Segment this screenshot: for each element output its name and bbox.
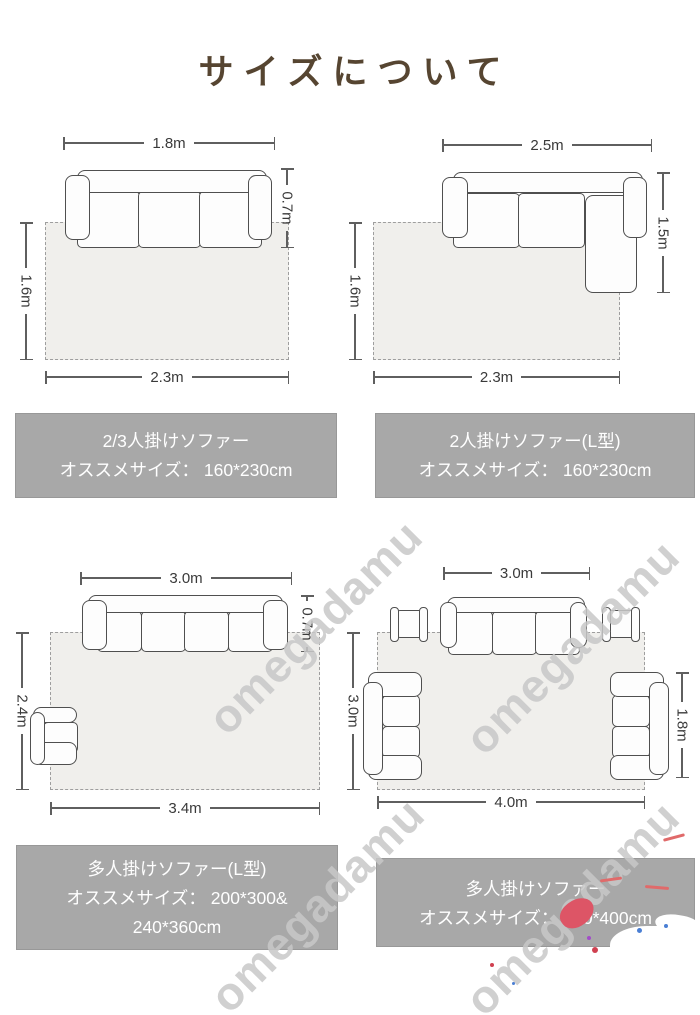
red-speck: [490, 963, 494, 967]
dimension-line: [25, 224, 27, 269]
dimension-left: 2.4m: [12, 632, 32, 790]
seat-cushion: [518, 193, 585, 248]
seat-cushion: [612, 695, 650, 727]
dimension-tick: [589, 567, 591, 580]
stool-left-side: [419, 607, 428, 642]
dimension-tick: [16, 789, 29, 791]
page-title: サイズについて: [0, 44, 700, 95]
loveseat-left-seats: [382, 695, 420, 758]
dimension-line: [52, 807, 161, 809]
dimension-label: 0.7m: [279, 191, 296, 224]
dimension-line: [352, 734, 354, 789]
dimension-line: [572, 144, 651, 146]
seat-cushion: [184, 611, 229, 652]
stool-left-side: [390, 607, 399, 642]
sofa-backrest: [77, 170, 267, 193]
dimension-line: [681, 674, 683, 703]
seat-cushion: [492, 611, 537, 655]
sofa-backrest: [447, 597, 585, 613]
seat-cushion: [382, 726, 420, 758]
blue-speck: [664, 924, 668, 928]
diagram-l-shape-2-seater: 2.5m 1.6m 1.5m 2.3m: [352, 130, 700, 400]
caption-recommended-size: オススメサイズ： 160*230cm: [376, 456, 694, 485]
dimension-label: 3.0m: [492, 565, 541, 582]
dimension-line: [286, 231, 288, 247]
dimension-label: 2.3m: [142, 369, 191, 386]
dimension-label: 3.0m: [345, 694, 362, 727]
dimension-tick: [288, 371, 290, 384]
dimension-tick: [657, 292, 670, 294]
dimension-label: 1.6m: [18, 274, 35, 307]
sofa-seats: [77, 191, 262, 248]
dimension-line: [192, 376, 288, 378]
dimension-line: [211, 577, 291, 579]
blue-speck: [637, 928, 642, 933]
dimension-right: 1.5m: [653, 172, 673, 293]
caption-recommended-size: オススメサイズ： 160*230cm: [16, 456, 336, 485]
dimension-tick: [349, 359, 362, 361]
dimension-tick: [274, 137, 276, 150]
dimension-line: [47, 376, 143, 378]
dimension-top: 2.5m: [442, 135, 652, 155]
dimension-bottom: 2.3m: [373, 367, 620, 387]
dimension-bottom: 3.4m: [50, 798, 320, 818]
dimension-label: 1.8m: [144, 135, 193, 152]
dimension-right: 1.8m: [672, 672, 692, 778]
sofa-armrest-left: [65, 175, 90, 240]
dimension-top: 1.8m: [63, 133, 275, 153]
dimension-line: [375, 376, 472, 378]
dimension-tick: [319, 802, 321, 815]
dimension-line: [82, 577, 162, 579]
blue-speck: [512, 982, 515, 985]
dimension-line: [21, 734, 23, 789]
dimension-line: [21, 634, 23, 689]
dimension-line: [662, 256, 664, 292]
sofa-backrest: [88, 595, 283, 613]
dimension-label: 3.0m: [161, 570, 210, 587]
dimension-label: 1.8m: [674, 708, 691, 741]
purple-speck: [587, 936, 591, 940]
dimension-tick: [651, 139, 653, 152]
sofa-armrest-right: [623, 177, 647, 238]
dimension-label: 1.5m: [655, 216, 672, 249]
dimension-tick: [281, 247, 294, 249]
seat-cushion: [612, 726, 650, 758]
dimension-line: [25, 314, 27, 359]
dimension-line: [286, 170, 288, 186]
dimension-line: [65, 142, 145, 144]
dimension-line: [354, 224, 356, 269]
loveseat-left-backrest: [363, 682, 383, 775]
dimension-line: [521, 376, 618, 378]
dimension-top: 3.0m: [80, 568, 292, 588]
dimension-label: 2.5m: [522, 137, 571, 154]
dimension-label: 4.0m: [486, 794, 535, 811]
dimension-bottom: 2.3m: [45, 367, 289, 387]
dimension-line: [210, 807, 319, 809]
dimension-tick: [347, 789, 360, 791]
seat-cushion: [382, 695, 420, 727]
dimension-line: [445, 572, 492, 574]
sofa-armrest-right: [248, 175, 272, 240]
caption-box-l-shape-2-seater: 2人掛けソファー(L型) オススメサイズ： 160*230cm: [375, 413, 695, 498]
dimension-line: [541, 572, 588, 574]
loveseat-right-seats: [612, 695, 650, 758]
dimension-left: 3.0m: [343, 632, 363, 790]
dimension-label: 2.3m: [472, 369, 521, 386]
size-guide-infographic: サイズについて 1.8m 1.6m 0.7m 2.3m: [0, 0, 700, 1015]
caption-title: 多人掛けソファー: [377, 875, 694, 904]
diagram-2-3-seater: 1.8m 1.6m 0.7m 2.3m: [14, 130, 344, 400]
dimension-left: 1.6m: [16, 222, 36, 360]
dimension-line: [681, 748, 683, 777]
dimension-label: 1.6m: [347, 274, 364, 307]
dimension-right: 0.7m: [277, 168, 297, 248]
sofa-armrest-left: [442, 177, 468, 238]
sofa-armrest-left: [82, 600, 107, 650]
sofa-seats: [453, 193, 585, 248]
seat-cushion: [141, 611, 186, 652]
dimension-label: 3.4m: [160, 800, 209, 817]
dimension-line: [354, 314, 356, 359]
loveseat-right-backrest: [649, 682, 669, 775]
dimension-tick: [291, 572, 293, 585]
caption-title: 2/3人掛けソファー: [16, 427, 336, 456]
red-speck: [592, 947, 598, 953]
dimension-line: [662, 174, 664, 210]
dimension-tick: [20, 359, 33, 361]
dimension-line: [194, 142, 274, 144]
caption-box-2-3-seater: 2/3人掛けソファー オススメサイズ： 160*230cm: [15, 413, 337, 498]
caption-title: 2人掛けソファー(L型): [376, 427, 694, 456]
sofa-seats: [97, 611, 273, 652]
armchair-backrest: [30, 712, 45, 765]
dimension-tick: [619, 371, 621, 384]
dimension-line: [536, 801, 644, 803]
seat-cushion: [138, 191, 201, 248]
dimension-top: 3.0m: [443, 563, 590, 583]
diagram-multi-seater-l: 3.0m 2.4m 0.7m 3.4m: [14, 545, 354, 835]
dimension-line: [444, 144, 523, 146]
sofa-backrest: [453, 172, 643, 193]
dimension-label: 2.4m: [14, 694, 31, 727]
sofa-armrest-left: [440, 602, 457, 648]
dimension-tick: [676, 777, 689, 779]
dimension-left: 1.6m: [345, 222, 365, 360]
dimension-line: [352, 634, 354, 689]
caption-title: 多人掛けソファー(L型): [17, 855, 337, 884]
